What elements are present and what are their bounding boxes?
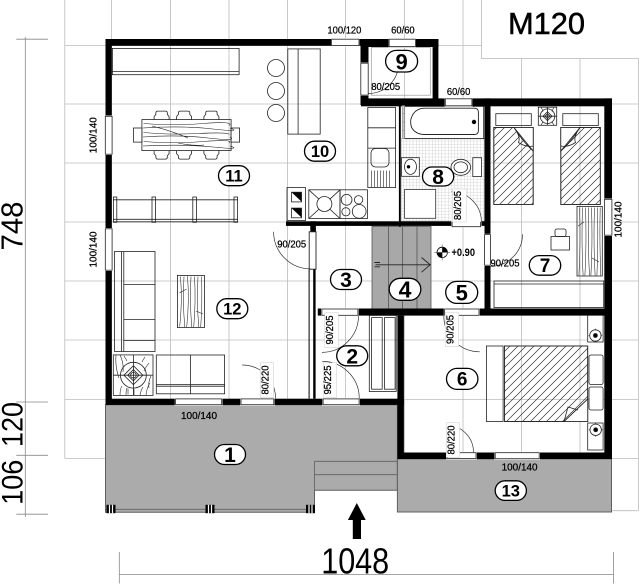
- svg-text:13: 13: [502, 483, 520, 501]
- svg-text:1: 1: [224, 444, 236, 467]
- svg-text:12: 12: [223, 301, 241, 319]
- svg-text:90/205: 90/205: [491, 258, 520, 269]
- svg-text:100/120: 100/120: [327, 26, 361, 37]
- svg-text:95/225: 95/225: [323, 365, 334, 394]
- svg-text:5: 5: [456, 280, 468, 305]
- svg-text:10: 10: [311, 143, 329, 161]
- svg-text:100/140: 100/140: [181, 411, 217, 422]
- svg-text:2: 2: [346, 345, 358, 368]
- svg-text:100/140: 100/140: [502, 463, 538, 474]
- svg-text:3: 3: [340, 269, 352, 292]
- svg-text:M120: M120: [508, 6, 585, 41]
- svg-text:100/140: 100/140: [614, 201, 625, 237]
- svg-text:1048: 1048: [321, 541, 389, 582]
- svg-text:60/60: 60/60: [391, 26, 415, 37]
- svg-text:80/220: 80/220: [447, 425, 458, 454]
- svg-text:80/205: 80/205: [453, 191, 464, 220]
- svg-text:120: 120: [0, 402, 29, 447]
- svg-text:106: 106: [0, 460, 29, 505]
- svg-text:90/205: 90/205: [325, 315, 336, 344]
- svg-text:80/220: 80/220: [261, 365, 272, 394]
- svg-text:9: 9: [395, 49, 407, 74]
- svg-text:4: 4: [399, 277, 412, 303]
- svg-text:+0.90: +0.90: [452, 247, 476, 259]
- svg-text:90/205: 90/205: [277, 240, 306, 251]
- svg-text:11: 11: [225, 168, 242, 186]
- svg-text:80/205: 80/205: [371, 82, 400, 93]
- svg-text:748: 748: [0, 202, 30, 251]
- svg-text:100/140: 100/140: [89, 231, 100, 267]
- svg-text:90/205: 90/205: [445, 315, 456, 344]
- svg-text:6: 6: [457, 370, 468, 391]
- svg-text:60/60: 60/60: [447, 87, 471, 98]
- svg-text:100/140: 100/140: [89, 117, 100, 153]
- svg-text:8: 8: [432, 166, 444, 189]
- svg-text:7: 7: [540, 256, 551, 277]
